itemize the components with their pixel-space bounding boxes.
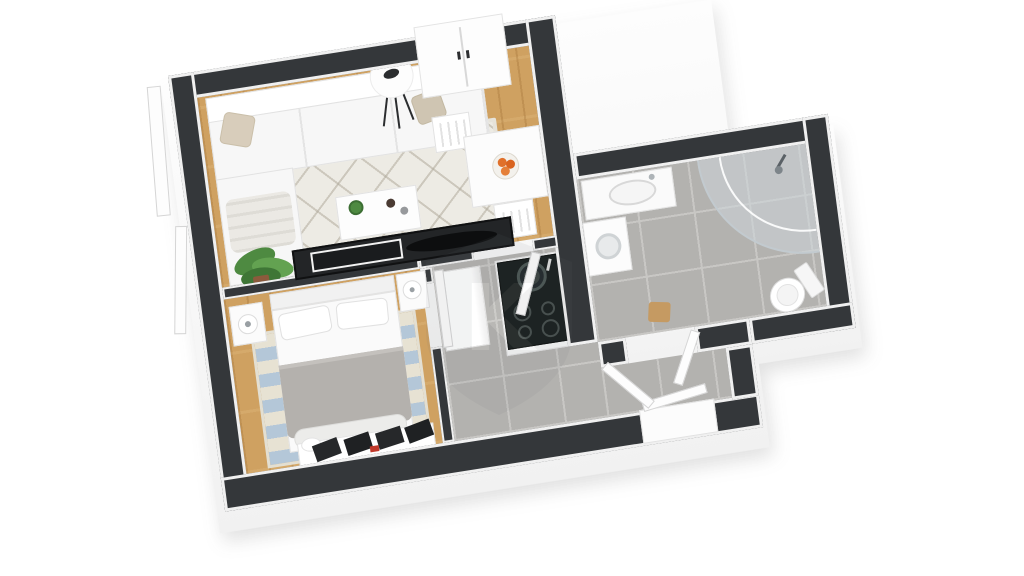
wardrobe-handle-right <box>466 50 470 58</box>
throw-pillow-left <box>219 111 256 148</box>
watermark-letter: K <box>463 265 538 372</box>
wall-bath-bottom-left-a <box>598 338 629 368</box>
page: { "app": { "type": "3d-floor-plan-render… <box>0 0 1024 576</box>
bath-stool <box>648 302 671 322</box>
wardrobe <box>413 13 511 98</box>
wardrobe-handle-left <box>457 51 461 59</box>
sofa-blanket <box>225 190 297 254</box>
watermark-shield: K <box>424 232 574 417</box>
window-frame-lower <box>174 226 187 334</box>
